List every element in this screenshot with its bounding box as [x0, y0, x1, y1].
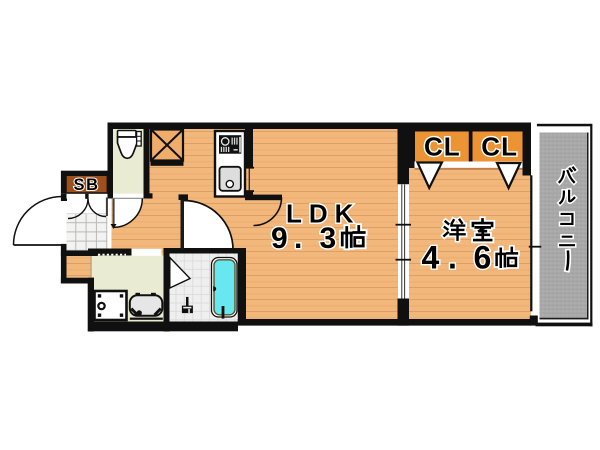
svg-text:6: 6 — [474, 240, 492, 276]
svg-text:.: . — [294, 222, 302, 255]
svg-text:9: 9 — [271, 222, 288, 255]
svg-text:CL: CL — [424, 131, 461, 161]
svg-text:4: 4 — [422, 240, 440, 276]
svg-text:.: . — [448, 240, 457, 276]
svg-text:SB: SB — [74, 176, 100, 194]
svg-text:CL: CL — [481, 131, 518, 161]
svg-text:3: 3 — [320, 222, 337, 255]
